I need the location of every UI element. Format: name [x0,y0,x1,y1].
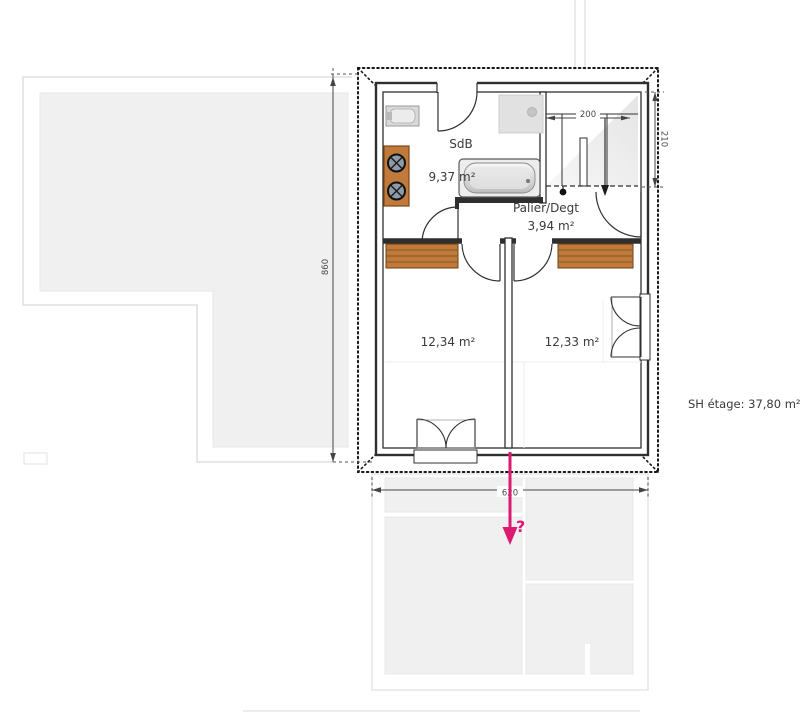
washbasin [386,106,419,126]
ghost-room [526,584,633,674]
stair-start-dot [560,189,567,196]
cooktop [384,146,409,206]
label-landing-name: Palier/Degt [513,201,579,215]
stair-rail [580,138,587,186]
shower-drain [528,108,537,117]
label-landing-area: 3,94 m² [527,219,574,233]
dim-860-label: 860 [321,259,331,275]
ghost-small-rect [24,453,47,464]
bathtub-drain [526,179,530,183]
window-sill [414,450,477,463]
wall-bedroom-separator [505,238,512,448]
wardrobe-left [386,244,458,268]
building [376,80,650,463]
ghost-room [385,517,522,674]
floor-area-summary: SH étage: 37,80 m² [688,397,800,411]
floorplan-page: 860 620 200 210 [0,0,800,715]
ghost-room-notch [585,644,590,675]
label-bathroom-name: SdB [449,137,472,151]
washbasin-tap [386,112,392,120]
floorplan-canvas[interactable]: 860 620 200 210 [0,0,800,715]
wardrobe-right [558,244,633,268]
burner [388,155,405,172]
dim-210-label: 210 [659,131,669,147]
shower-tray [499,95,543,133]
annotation-question-mark: ? [516,517,525,536]
ghost-room [526,478,633,580]
label-bedroom-left-area: 12,34 m² [421,335,476,349]
burner [388,183,405,200]
label-bedroom-right-area: 12,33 m² [545,335,600,349]
dim-200-label: 200 [580,110,596,120]
label-bathroom-area: 9,37 m² [428,170,475,184]
ghost-terrace-left [40,93,348,447]
